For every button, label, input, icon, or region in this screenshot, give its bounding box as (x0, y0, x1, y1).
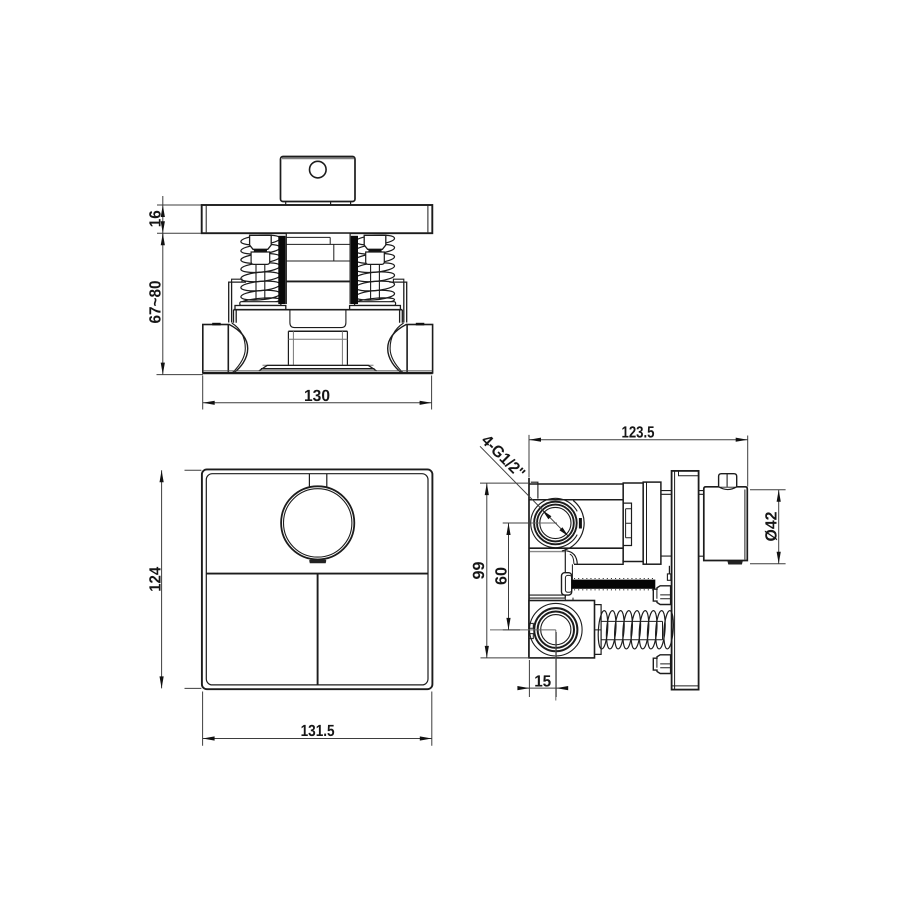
svg-text:124: 124 (147, 567, 165, 592)
svg-text:16: 16 (146, 210, 164, 227)
svg-text:Ø42: Ø42 (762, 512, 780, 542)
svg-text:60: 60 (492, 567, 510, 585)
svg-text:99: 99 (470, 562, 488, 580)
svg-text:123.5: 123.5 (622, 423, 655, 441)
svg-text:130: 130 (304, 387, 330, 405)
svg-text:67~80: 67~80 (146, 281, 164, 324)
svg-text:15: 15 (534, 673, 551, 691)
svg-text:131.5: 131.5 (301, 722, 335, 740)
